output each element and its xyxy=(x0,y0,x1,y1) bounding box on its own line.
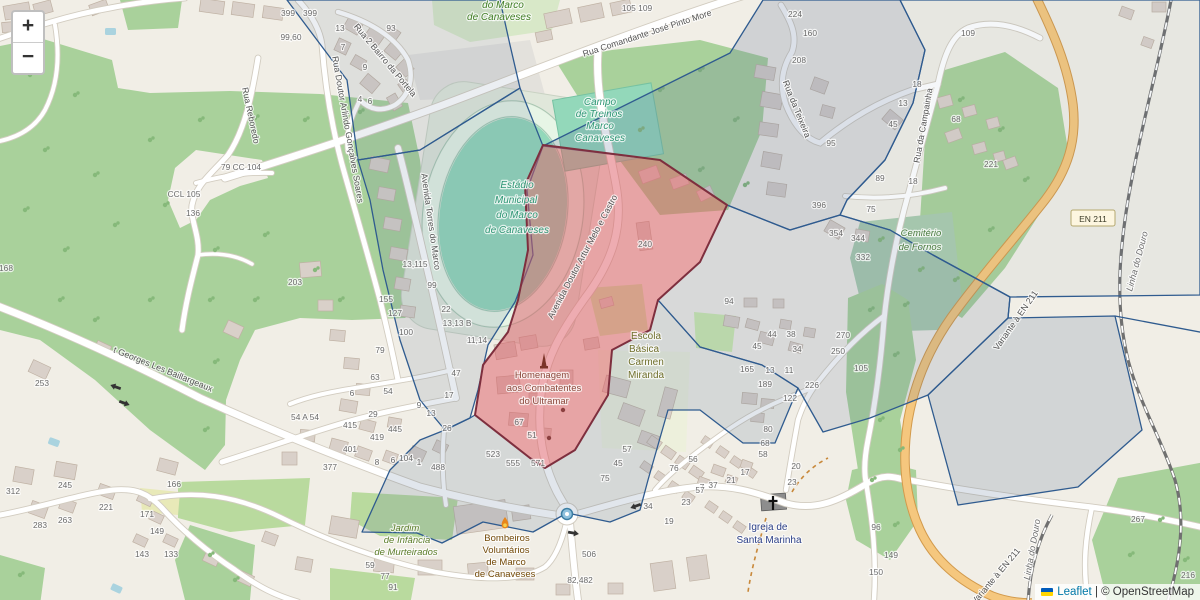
map-label: 68 xyxy=(951,114,961,124)
map-label: Municipal xyxy=(495,195,538,206)
building xyxy=(608,583,623,594)
map-label: 45 xyxy=(888,119,898,129)
map-label: 571 xyxy=(531,458,545,468)
map-label: Bombeiros xyxy=(484,533,530,544)
attribution-bar: Leaflet | © OpenStreetMap xyxy=(1035,584,1200,600)
tree-icon xyxy=(66,246,69,249)
tree-icon xyxy=(1131,551,1134,554)
map-label: 13,13 B xyxy=(443,318,472,328)
map-label: 34 xyxy=(792,344,802,354)
map-label: 399 xyxy=(281,8,295,18)
tree-icon xyxy=(1161,516,1164,519)
pin-icon xyxy=(547,436,551,440)
map-label: 23 xyxy=(681,497,691,507)
tree-icon xyxy=(266,231,269,234)
map-label: 488 xyxy=(431,462,445,472)
map-label: 20 xyxy=(791,461,801,471)
building xyxy=(54,461,77,479)
tree-icon xyxy=(76,91,79,94)
map-label: 419 xyxy=(370,432,384,442)
map-label: 76 xyxy=(669,463,679,473)
road-shield: EN 211 xyxy=(1071,210,1115,226)
map-label: 11,14 xyxy=(467,335,488,345)
map-label: Campo xyxy=(584,97,617,108)
map-label: 150 xyxy=(869,567,883,577)
map-label: 165 xyxy=(740,364,754,374)
map-label: de Fornos xyxy=(899,242,942,253)
map-label: 91 xyxy=(388,582,398,592)
road-shield-label: EN 211 xyxy=(1079,214,1107,224)
map-label: 29 xyxy=(368,409,378,419)
pool xyxy=(105,28,116,35)
map-label: 344 xyxy=(851,233,865,243)
map-label: 221 xyxy=(984,159,998,169)
map-label: de Marco xyxy=(486,557,526,568)
map-label: 4 xyxy=(358,94,363,104)
map-label: 253 xyxy=(35,378,49,388)
leaflet-link[interactable]: Leaflet xyxy=(1057,586,1092,598)
map-label: 58 xyxy=(758,449,768,459)
tree-icon xyxy=(306,116,309,119)
map-label: de Canaveses xyxy=(467,12,531,23)
map-label: de Canaveses xyxy=(485,225,549,236)
map-label: 105 109 xyxy=(622,3,653,13)
map-label: 82,482 xyxy=(567,575,593,585)
map-label: 240 xyxy=(638,239,652,249)
openstreetmap-link[interactable]: © OpenStreetMap xyxy=(1101,586,1194,598)
attribution-separator: | xyxy=(1092,586,1101,598)
map-label: Canaveses xyxy=(575,133,625,144)
map-label: 54 A 54 xyxy=(291,412,319,422)
map-label: 415 xyxy=(343,420,357,430)
tree-icon xyxy=(236,576,239,579)
map-label: CCL 105 xyxy=(168,189,201,199)
map-label: 267 xyxy=(1131,514,1145,524)
tree-icon xyxy=(341,296,344,299)
tree-icon xyxy=(166,201,169,204)
map-label: 22 xyxy=(441,304,451,314)
map-label: 312 xyxy=(6,486,20,496)
map-label: 95 xyxy=(826,138,836,148)
building xyxy=(650,561,676,592)
map-label: 127 xyxy=(388,308,402,318)
map-label: 63 xyxy=(370,372,380,382)
map-label: Escola xyxy=(631,331,661,342)
map-label: 38 xyxy=(786,329,796,339)
map-label: aos Combatentes xyxy=(507,383,582,394)
zoom-out-button[interactable]: − xyxy=(13,43,43,73)
map-label: 45 xyxy=(613,458,623,468)
map-label: de Infância xyxy=(384,535,430,546)
map-label: 1 xyxy=(417,457,422,467)
building xyxy=(295,557,313,573)
map-label: do Marco xyxy=(482,0,524,11)
building xyxy=(282,452,297,465)
map-label: do Marco xyxy=(496,210,538,221)
map-label: 51 xyxy=(527,430,537,440)
tree-icon xyxy=(211,551,214,554)
map-label: Básica xyxy=(629,344,659,355)
map-label: 122 xyxy=(783,393,797,403)
map-label: 189 xyxy=(758,379,772,389)
map-label: 56 xyxy=(688,454,698,464)
map-label: 226 xyxy=(805,380,819,390)
map-label: 523 xyxy=(486,449,500,459)
map-label: 401 xyxy=(343,444,357,454)
map-label: 354 xyxy=(829,228,843,238)
map-label: 13,115 xyxy=(403,259,428,269)
tree-icon xyxy=(21,571,24,574)
map-label: 11 xyxy=(785,365,794,375)
map-label: 203 xyxy=(288,277,302,287)
map-label: 506 xyxy=(582,549,596,559)
map-label: 9 xyxy=(417,400,422,410)
tree-icon xyxy=(46,146,49,149)
map-label: 77 xyxy=(380,571,390,581)
tree-icon xyxy=(881,416,884,419)
map-label: 6 xyxy=(368,96,373,106)
map-label: Marco xyxy=(586,121,614,132)
map-label: 93 xyxy=(386,23,396,33)
tree-icon xyxy=(1186,556,1189,559)
map-label: 17 xyxy=(740,467,750,477)
map-label: 80 xyxy=(763,424,773,434)
building xyxy=(339,399,358,414)
map-label: Estádio xyxy=(500,180,534,191)
map-label: 37 xyxy=(708,480,718,490)
tree-icon xyxy=(26,206,29,209)
map-label: 79 CC 104 xyxy=(221,162,261,172)
map-label: 149 xyxy=(150,526,164,536)
map-label: 47 xyxy=(451,368,461,378)
map-label: 109 xyxy=(961,28,975,38)
tree-icon xyxy=(901,446,904,449)
map-label: 100 xyxy=(399,327,413,337)
map-label: 57 xyxy=(622,444,632,454)
map-label: 68 xyxy=(760,438,770,448)
building xyxy=(556,584,570,595)
map-label: de Canaveses xyxy=(475,569,536,580)
map-label: 79 xyxy=(375,345,385,355)
map-label: 136 xyxy=(186,208,200,218)
map-label: 54 xyxy=(383,386,393,396)
tree-icon xyxy=(256,296,259,299)
map-label: 6 xyxy=(350,388,355,398)
map-label: 104 xyxy=(399,453,413,463)
building xyxy=(318,300,333,311)
pin-icon xyxy=(561,408,565,412)
tree-icon xyxy=(896,521,899,524)
tree-icon xyxy=(151,296,154,299)
map-label: Carmen xyxy=(628,357,664,368)
map-label: 250 xyxy=(831,346,845,356)
map-label: 59 xyxy=(365,560,375,570)
map-label: 149 xyxy=(884,550,898,560)
map-label: Jardim xyxy=(390,523,420,534)
tree-icon xyxy=(96,316,99,319)
building xyxy=(344,357,360,369)
map-label: 377 xyxy=(323,462,337,472)
map-label: 245 xyxy=(58,480,72,490)
tree-icon xyxy=(211,296,214,299)
map-label: 17 xyxy=(444,390,454,400)
map-label: Miranda xyxy=(628,370,665,381)
leaflet-map[interactable]: EN 211 Rua 2 Bairro da PortelaRua Doutor… xyxy=(0,0,1200,600)
map-label: 13 xyxy=(898,98,908,108)
zoom-in-button[interactable]: + xyxy=(13,12,43,43)
map-label: Santa Marinha xyxy=(736,535,801,546)
map-canvas[interactable]: EN 211 Rua 2 Bairro da PortelaRua Doutor… xyxy=(0,0,1200,600)
map-label: de Murteirados xyxy=(374,547,438,558)
map-label: 45 xyxy=(752,341,762,351)
map-label: 171 xyxy=(140,509,154,519)
building xyxy=(231,2,255,18)
map-label: 143 xyxy=(135,549,149,559)
map-label: 399 xyxy=(303,8,317,18)
tree-icon xyxy=(873,476,876,479)
map-label: 18 xyxy=(908,176,918,186)
map-label: 105 xyxy=(854,363,868,373)
map-label: 8 xyxy=(375,457,380,467)
tree-icon xyxy=(116,221,119,224)
map-label: 9 xyxy=(363,62,368,72)
map-label: 13 xyxy=(765,365,775,375)
map-label: 166 xyxy=(167,479,181,489)
map-label: de Treinos xyxy=(576,109,623,120)
map-label: 96 xyxy=(871,522,881,532)
tree-icon xyxy=(316,266,319,269)
tree-icon xyxy=(151,136,154,139)
map-label: 34 xyxy=(643,501,653,511)
building xyxy=(13,466,34,484)
map-label: Igreja de xyxy=(749,522,788,533)
map-label: 13 xyxy=(335,23,345,33)
zoom-control: + − xyxy=(11,10,45,75)
map-label: 208 xyxy=(792,55,806,65)
map-label: 99 xyxy=(427,280,437,290)
map-label: 75 xyxy=(600,473,610,483)
map-label: 216 xyxy=(1181,570,1195,580)
map-label: 168 xyxy=(0,263,13,273)
map-label: 18 xyxy=(912,79,922,89)
tree-icon xyxy=(201,116,204,119)
map-label: 221 xyxy=(99,502,113,512)
map-label: 270 xyxy=(836,330,850,340)
map-label: 21 xyxy=(726,475,736,485)
map-label: Cemitério xyxy=(901,228,942,239)
map-label: 75 xyxy=(866,204,876,214)
map-label: 57 xyxy=(695,485,705,495)
map-label: Voluntários xyxy=(482,545,529,556)
ukraine-flag-icon xyxy=(1041,588,1053,596)
map-label: 445 xyxy=(388,424,402,434)
building xyxy=(330,329,346,341)
tree-icon xyxy=(61,296,64,299)
tree-icon xyxy=(206,426,209,429)
map-label: 7 xyxy=(341,42,346,52)
map-label: 44 xyxy=(767,329,777,339)
tree-icon xyxy=(96,171,99,174)
map-label: 155 xyxy=(379,294,393,304)
map-label: 555 xyxy=(506,458,520,468)
map-label: 89 xyxy=(875,173,885,183)
tree-icon xyxy=(216,358,219,361)
map-label: 23 xyxy=(787,477,797,487)
map-label: 332 xyxy=(856,252,870,262)
map-label: Homenagem xyxy=(515,370,569,381)
map-label: 26 xyxy=(442,423,452,433)
map-label: 19 xyxy=(664,516,674,526)
map-label: 283 xyxy=(33,520,47,530)
map-label: 224 xyxy=(788,9,802,19)
map-label: 94 xyxy=(724,296,734,306)
fountain-icon xyxy=(562,509,573,520)
map-label: 263 xyxy=(58,515,72,525)
map-label: 6 xyxy=(391,455,396,465)
tree-icon xyxy=(216,246,219,249)
map-label: 67 xyxy=(514,417,524,427)
map-label: 160 xyxy=(803,28,817,38)
map-label: 396 xyxy=(812,200,826,210)
map-label: 13 xyxy=(426,408,436,418)
map-label: 99,60 xyxy=(281,32,302,42)
building xyxy=(686,555,709,582)
map-label: 133 xyxy=(164,549,178,559)
map-label: do Ultramar xyxy=(519,396,569,407)
